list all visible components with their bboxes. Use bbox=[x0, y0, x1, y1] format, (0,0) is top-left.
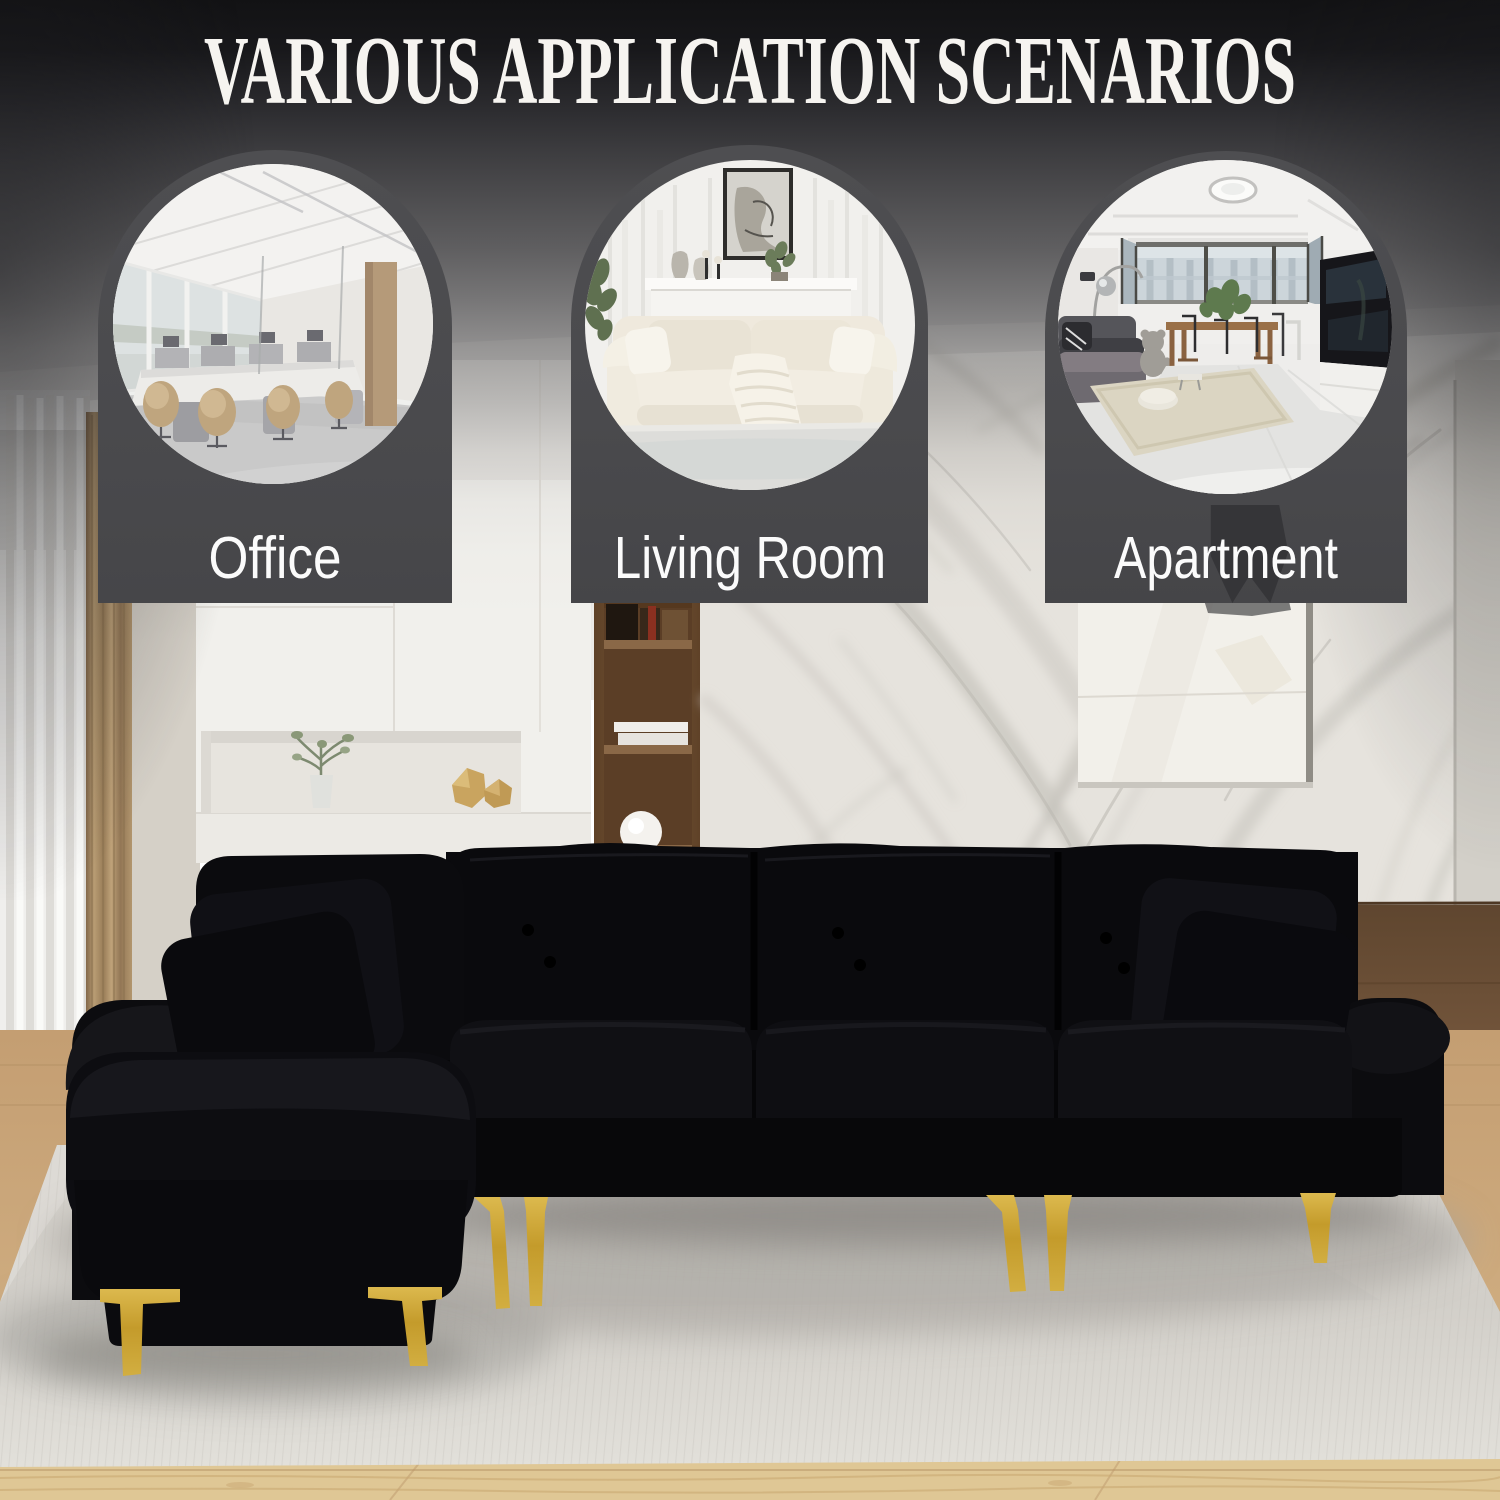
svg-text:Living Room: Living Room bbox=[614, 525, 886, 591]
svg-text:Office: Office bbox=[209, 525, 342, 591]
svg-text:VARIOUS APPLICATION SCENARIOS: VARIOUS APPLICATION SCENARIOS bbox=[204, 17, 1296, 124]
svg-text:Apartment: Apartment bbox=[1114, 525, 1338, 591]
